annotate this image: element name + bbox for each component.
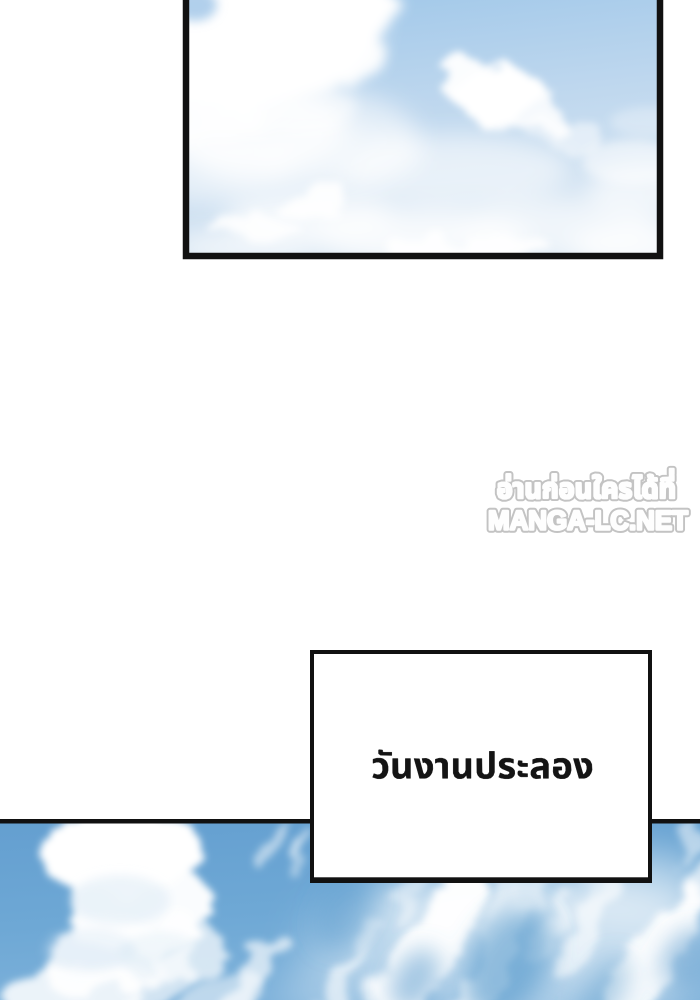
svg-text:MANGA-LC.NET: MANGA-LC.NET xyxy=(488,506,688,536)
